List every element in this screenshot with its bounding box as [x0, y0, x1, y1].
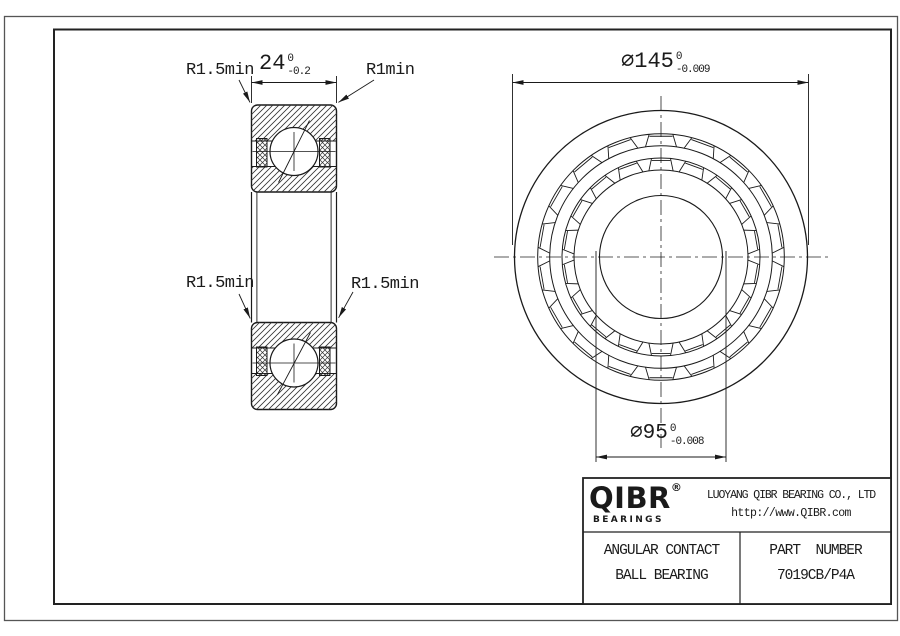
bore-tolerance: 0 -0.008: [670, 423, 704, 448]
od-dimension-label: ⌀145 0 -0.009: [621, 51, 709, 76]
width-tolerance: 0 -0.2: [287, 53, 309, 78]
bore-value: ⌀95: [630, 423, 668, 448]
od-tolerance: 0 -0.009: [676, 51, 710, 76]
fillet-label-top-right: R1min: [366, 61, 415, 80]
od-value: ⌀145: [621, 51, 674, 76]
width-value: 24: [259, 53, 285, 78]
product-name-cell: ANGULAR CONTACT BALL BEARING: [583, 543, 740, 584]
company-name: LUOYANG QIBR BEARING CO., LTD: [696, 489, 886, 502]
logo-text: QIBR: [589, 481, 671, 515]
drawing-linework: [0, 0, 900, 636]
product-name-line1: ANGULAR CONTACT: [583, 543, 740, 559]
part-number-label: PART NUMBER: [740, 543, 891, 559]
company-logo: QIBR® BEARINGS: [589, 484, 682, 525]
section-bottom-half: [252, 323, 337, 410]
product-name-line2: BALL BEARING: [583, 568, 740, 584]
fillet-label-mid-left: R1.5min: [186, 274, 254, 293]
fillet-label-mid-right: R1.5min: [351, 275, 419, 294]
bearing-technical-drawing: 24 0 -0.2 R1.5min R1min R1.5min R1.5min …: [0, 0, 900, 636]
fillet-label-top-left: R1.5min: [186, 61, 254, 80]
bore-dimension-label: ⌀95 0 -0.008: [630, 423, 703, 448]
company-info: LUOYANG QIBR BEARING CO., LTD http://www…: [696, 489, 886, 520]
company-website: http://www.QIBR.com: [696, 507, 886, 520]
part-number-value: 7019CB/P4A: [740, 568, 891, 584]
logo-subtext: BEARINGS: [593, 515, 682, 525]
part-number-cell: PART NUMBER 7019CB/P4A: [740, 543, 891, 584]
registered-trademark-icon: ®: [671, 481, 682, 494]
section-top-half: [252, 105, 337, 192]
width-dimension-label: 24 0 -0.2: [259, 53, 310, 78]
